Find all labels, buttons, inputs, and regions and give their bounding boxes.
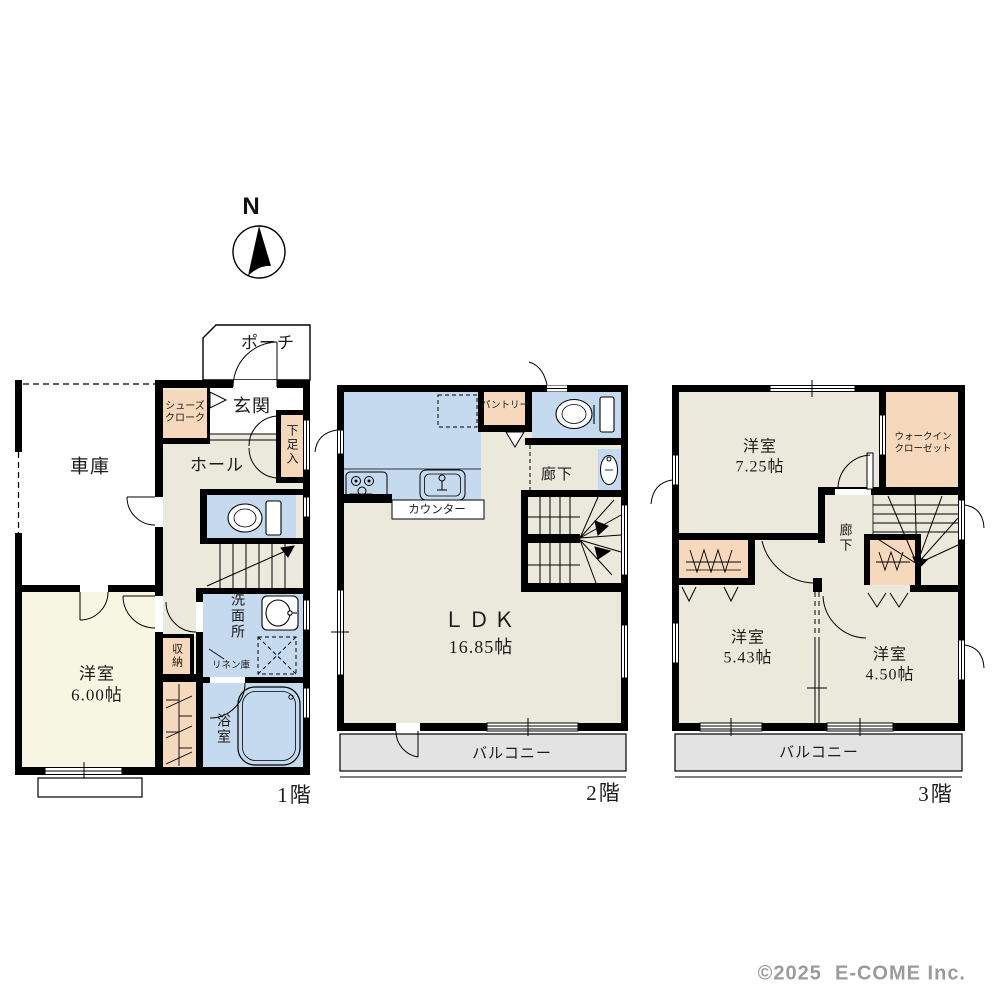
room-label-hall: ホール [190,456,244,477]
floor3-label: 3階 [918,782,954,808]
room-label-corridor-2f: 廊下 [541,466,573,484]
room-label-linen: リネン庫 [212,660,250,672]
washbasin-icon-2f [601,456,618,485]
room-label-ldk: ＬＤＫ [444,608,519,634]
room-label-balcony-2f: バルコニー [472,745,552,763]
room-label-bathroom: 浴室 [215,713,229,745]
room-label-washroom: 洗面所 [229,592,243,640]
room-label-shoes-cloak: シューズ クローク [165,401,205,425]
room-label-storage: 収納 [171,643,182,669]
room-label-ldk-size: 16.85帖 [449,637,514,659]
room-label-counter: カウンター [408,503,466,517]
room-label-western-room-1f: 洋室 6.00帖 [71,664,123,705]
room-label-western-room-450: 洋室 4.50帖 [865,645,914,684]
room-label-garage: 車庫 [70,455,110,478]
floorplan-canvas: N ポーチ シューズ クローク 玄関 下足入 ホール 車庫 洋室 6.00帖 収… [0,0,1000,1000]
room-label-balcony-3f: バルコニー [779,744,859,762]
floor2-label: 2階 [586,781,622,807]
room-label-pantry: パントリー [481,400,529,412]
room-label-entrance: 玄関 [233,396,271,418]
room-label-western-room-543: 洋室 5.43帖 [723,628,772,667]
room-label-corridor-3f: 廊下 [839,523,852,553]
room-label-porch: ポーチ [241,334,295,355]
floor2-plan [315,362,628,777]
copyright-text: ©2025 E-COME Inc. [758,963,966,986]
toilet-icon-1f [228,501,281,535]
compass-icon [233,226,285,278]
room-label-western-room-725: 洋室 7.25帖 [735,437,784,476]
washbasin-icon-1f [262,596,298,630]
room-label-wic: ウォークイン クローゼット [894,431,951,454]
floorplan-drawing [0,0,1000,1000]
compass-n-label: N [242,193,259,221]
floor1-label: 1階 [277,783,313,809]
room-label-shoe-cabinet: 下足入 [286,424,298,466]
